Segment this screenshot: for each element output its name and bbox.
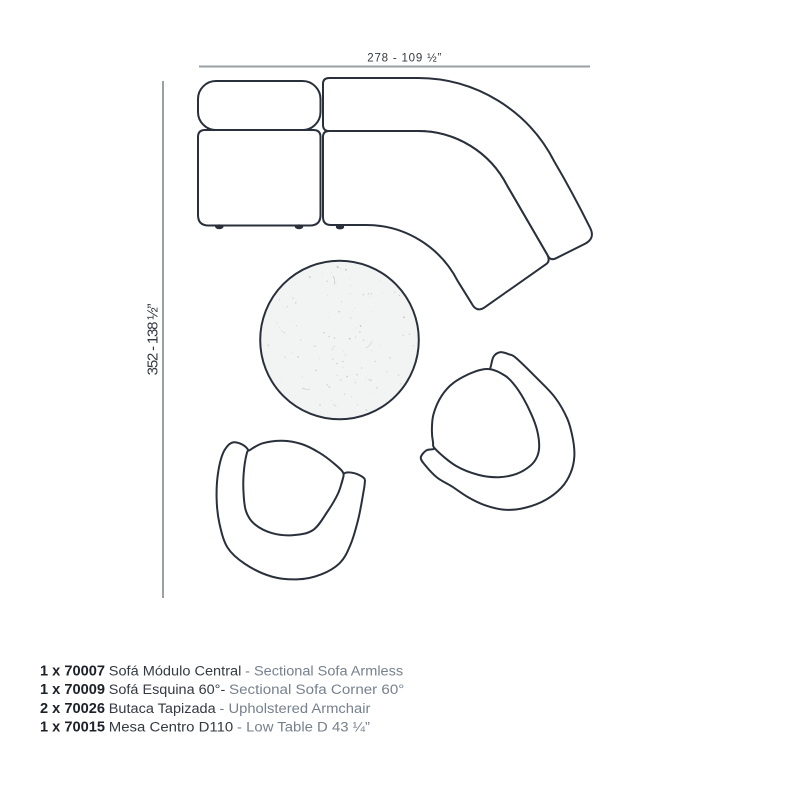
svg-text:1 x 70007 Sofá Módulo Central: 1 x 70007 Sofá Módulo Central - Sectiona… (40, 663, 403, 680)
svg-text:1 x 70009 Sofá Esquina 60°- Se: 1 x 70009 Sofá Esquina 60°- Sectional So… (40, 681, 404, 698)
svg-text:352 - 138 ½”: 352 - 138 ½” (145, 303, 162, 375)
svg-text:1 x 70015 Mesa Centro D110 - L: 1 x 70015 Mesa Centro D110 - Low Table D… (40, 719, 370, 736)
svg-text:278 - 109 ½”: 278 - 109 ½” (367, 53, 442, 65)
svg-text:2 x 70026 Butaca Tapizada - Up: 2 x 70026 Butaca Tapizada - Upholstered … (40, 700, 371, 717)
